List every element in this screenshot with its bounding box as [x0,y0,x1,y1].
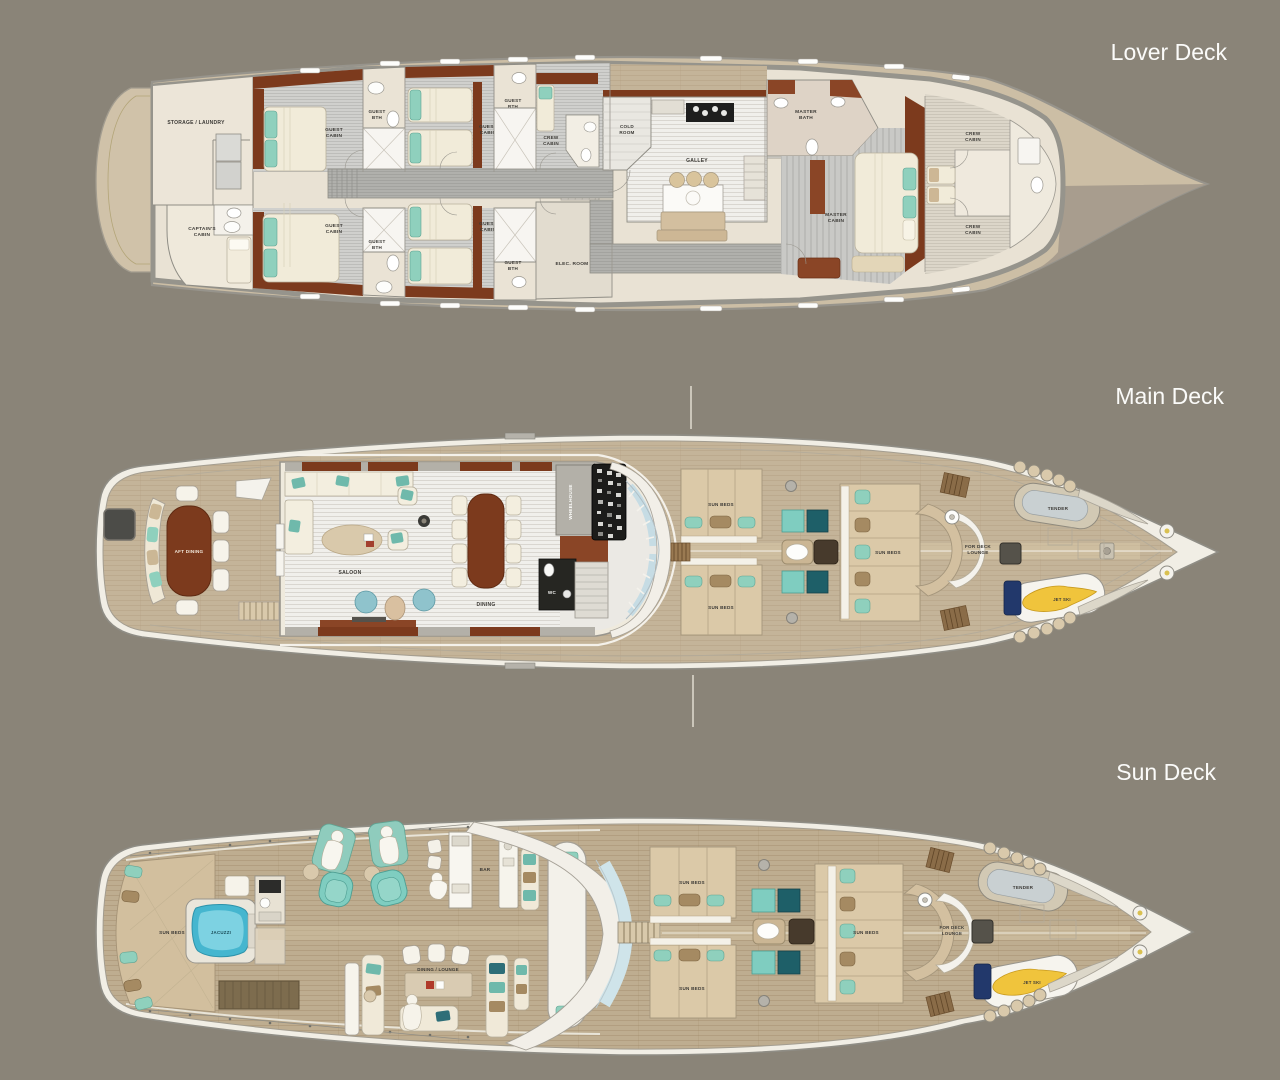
svg-text:CREW: CREW [965,131,980,136]
svg-text:SUN BEDS: SUN BEDS [708,605,734,610]
svg-text:BATH: BATH [799,115,813,121]
svg-text:Main Deck: Main Deck [1115,383,1224,409]
svg-text:CAPTAIN'S: CAPTAIN'S [188,226,216,232]
svg-text:LOUNGE: LOUNGE [942,931,962,936]
svg-text:GUEST: GUEST [325,127,343,133]
svg-text:CABIN: CABIN [965,137,981,142]
svg-text:CABIN: CABIN [326,133,343,139]
svg-text:TENDER: TENDER [1013,885,1034,890]
svg-text:CABIN: CABIN [965,230,981,235]
svg-text:DINING / LOUNGE: DINING / LOUNGE [417,967,459,972]
svg-text:Lover Deck: Lover Deck [1111,39,1228,65]
svg-text:SUN BEDS: SUN BEDS [159,930,185,935]
svg-text:CABIN: CABIN [194,232,211,238]
svg-text:WHEELHOUSE: WHEELHOUSE [568,484,573,519]
svg-text:MASTER: MASTER [795,109,817,115]
svg-text:CABIN: CABIN [828,218,845,224]
svg-text:DINING: DINING [477,602,496,608]
svg-text:ELEC. ROOM: ELEC. ROOM [556,261,589,267]
svg-text:BTH: BTH [508,266,519,271]
svg-text:ROOM: ROOM [619,130,634,135]
svg-text:Sun Deck: Sun Deck [1116,759,1216,785]
svg-text:JET SKI: JET SKI [1023,980,1041,985]
svg-text:GUEST: GUEST [504,260,521,265]
svg-text:BTH: BTH [372,245,383,250]
svg-text:MASTER: MASTER [825,212,847,218]
svg-text:GUEST: GUEST [368,239,385,244]
svg-text:BAR: BAR [480,867,491,872]
svg-text:GALLEY: GALLEY [686,158,708,164]
svg-text:STORAGE / LAUNDRY: STORAGE / LAUNDRY [167,120,225,126]
svg-text:GUEST: GUEST [504,98,521,103]
svg-text:BTH: BTH [372,115,383,120]
svg-text:CABIN: CABIN [326,229,343,235]
svg-text:FOR DECK: FOR DECK [940,925,966,930]
svg-text:GUEST: GUEST [325,223,343,229]
svg-text:WC: WC [548,590,557,595]
svg-text:CREW: CREW [965,224,980,229]
svg-text:JACUZZI: JACUZZI [211,930,231,935]
svg-text:GUEST: GUEST [368,109,385,114]
svg-text:FOR DECK: FOR DECK [965,544,991,549]
svg-text:JET SKI: JET SKI [1053,597,1071,602]
svg-text:CABIN: CABIN [543,141,559,146]
svg-text:COLD: COLD [620,124,634,129]
svg-text:SUN BEDS: SUN BEDS [679,986,705,991]
svg-text:LOUNGE: LOUNGE [967,550,988,555]
svg-text:TENDER: TENDER [1048,506,1069,511]
svg-text:AFT DINING: AFT DINING [175,549,204,554]
svg-text:CREW: CREW [543,135,558,140]
svg-text:SUN BEDS: SUN BEDS [708,502,734,507]
svg-text:SUN BEDS: SUN BEDS [853,930,879,935]
svg-text:SALOON: SALOON [339,570,362,576]
svg-text:SUN BEDS: SUN BEDS [875,550,901,555]
svg-text:SUN BEDS: SUN BEDS [679,880,705,885]
